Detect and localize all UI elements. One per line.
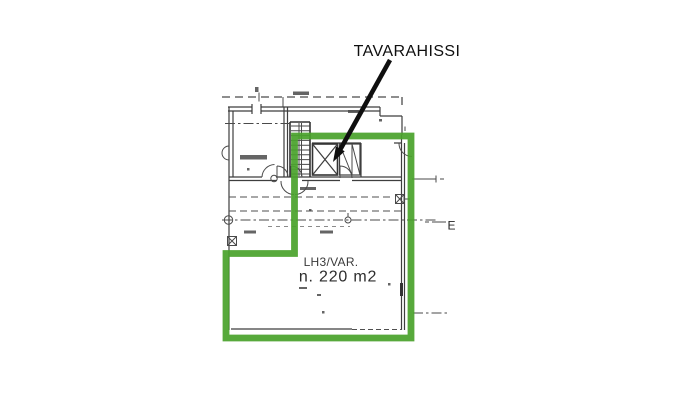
wall-stub bbox=[412, 176, 444, 183]
section-marker-label: E bbox=[448, 219, 456, 233]
area-name-label: LH3/VAR. bbox=[304, 255, 359, 269]
area-highlight-outline bbox=[226, 136, 411, 338]
floorplan-canvas: E bbox=[0, 0, 685, 412]
boundary-dashed-line bbox=[222, 93, 402, 108]
floorplan-image: E bbox=[0, 0, 685, 412]
area-size-label: n. 220 m2 bbox=[299, 269, 377, 286]
section-marker: E bbox=[425, 219, 456, 233]
annotation-label: TAVARAHISSI bbox=[354, 43, 461, 60]
